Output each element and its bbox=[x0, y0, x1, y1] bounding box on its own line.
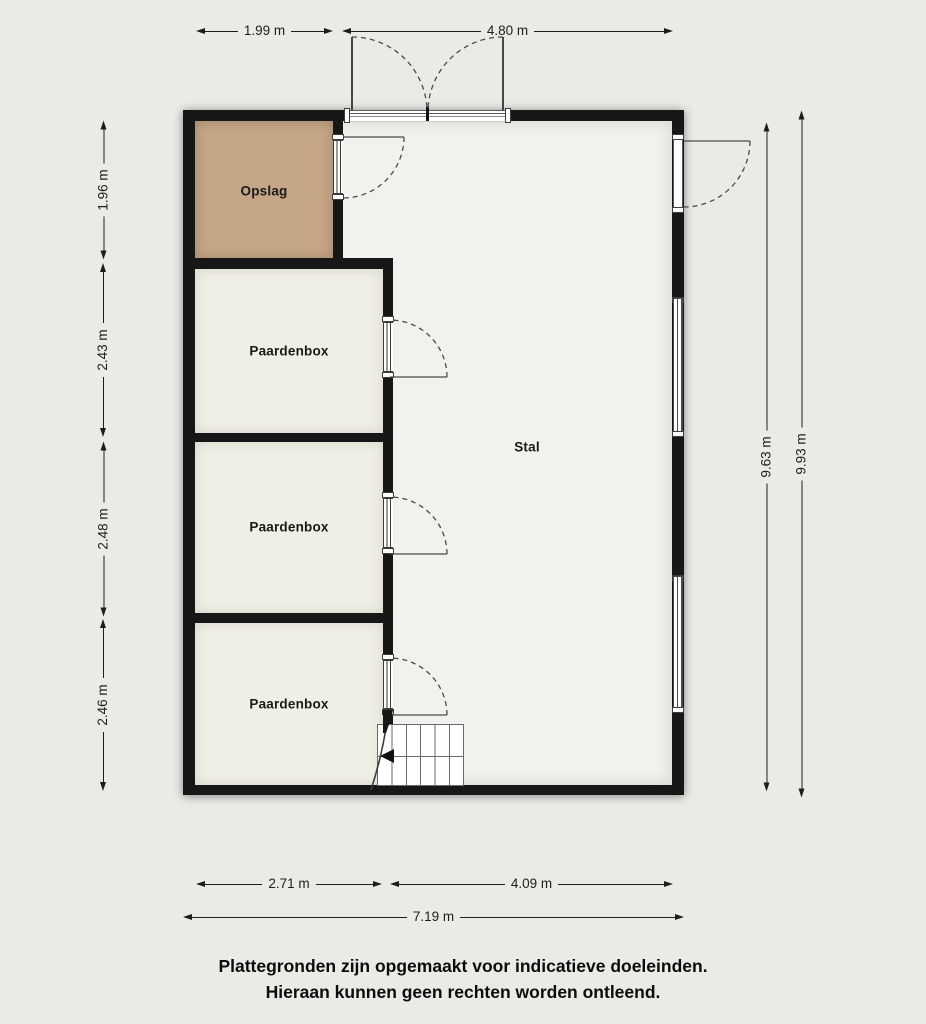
dimension-label: 4.09 m bbox=[505, 876, 558, 892]
room-label-stal: Stal bbox=[514, 440, 540, 455]
dimension-bottom-box: 2.71 m bbox=[196, 876, 382, 892]
door-swings-overlay bbox=[0, 0, 926, 1024]
dimension-top-stal: 4.80 m bbox=[342, 23, 673, 39]
dimension-left-box3: 2.46 m bbox=[95, 619, 111, 791]
dimension-left-box1: 2.43 m bbox=[95, 263, 111, 437]
dimension-bottom-total: 7.19 m bbox=[183, 909, 684, 925]
dimension-label: 1.99 m bbox=[238, 23, 291, 39]
room-label-opslag: Opslag bbox=[241, 184, 288, 199]
dimension-left-box2: 2.48 m bbox=[95, 441, 111, 616]
disclaimer-line1: Plattegronden zijn opgemaakt voor indica… bbox=[0, 953, 926, 979]
dimension-bottom-stal: 4.09 m bbox=[390, 876, 673, 892]
room-label-paardenbox-2: Paardenbox bbox=[249, 520, 328, 535]
dimension-label: 2.71 m bbox=[262, 876, 315, 892]
dimension-label: 2.48 m bbox=[95, 502, 111, 555]
dimension-top-opslag: 1.99 m bbox=[196, 23, 333, 39]
dimension-right-inner: 9.63 m bbox=[758, 122, 774, 791]
dimension-left-opslag: 1.96 m bbox=[95, 120, 111, 259]
dimension-label: 9.93 m bbox=[793, 427, 809, 480]
dimension-label: 7.19 m bbox=[407, 909, 460, 925]
dimension-label: 1.96 m bbox=[95, 163, 111, 216]
dimension-label: 2.46 m bbox=[95, 678, 111, 731]
dimension-label: 2.43 m bbox=[95, 323, 111, 376]
dimension-label: 4.80 m bbox=[481, 23, 534, 39]
room-label-paardenbox-3: Paardenbox bbox=[249, 697, 328, 712]
floorplan-page: Opslag Paardenbox Paardenbox Paardenbox … bbox=[0, 0, 926, 1024]
dimension-label: 9.63 m bbox=[758, 430, 774, 483]
room-label-paardenbox-1: Paardenbox bbox=[249, 344, 328, 359]
disclaimer: Plattegronden zijn opgemaakt voor indica… bbox=[0, 953, 926, 1005]
wall-wedge bbox=[383, 710, 393, 733]
dimension-right-outer: 9.93 m bbox=[793, 110, 809, 797]
disclaimer-line2: Hieraan kunnen geen rechten worden ontle… bbox=[0, 979, 926, 1005]
